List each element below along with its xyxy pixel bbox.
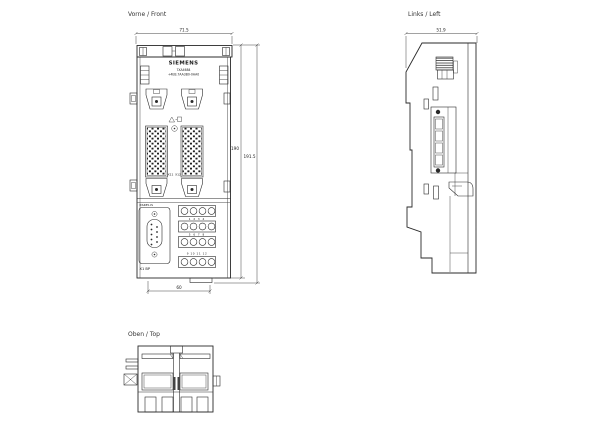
- side-connector-strip: [431, 107, 456, 173]
- connector-label-x12: X12: [175, 173, 181, 177]
- bus-adapter-connector: [436, 57, 458, 79]
- top-view: Oben / Top: [124, 331, 220, 412]
- vent-slots-left: [141, 66, 150, 84]
- terminal-row-2: [179, 221, 216, 232]
- release-lever-bottom-right: [182, 179, 203, 197]
- terminal-block: 1 2 3 4 5 6 7 8 9 10 11 12: [179, 206, 216, 268]
- front-bottom-foot: [190, 278, 212, 283]
- front-rail-bar: [137, 46, 232, 58]
- top-bottom-feet: [138, 390, 213, 412]
- front-dim-width: 71.5: [135, 28, 234, 45]
- release-lever-top-left: [146, 89, 167, 109]
- part-number-line2: +4EB.7AA3B0-0AA0: [168, 73, 199, 77]
- top-module: [124, 346, 220, 412]
- release-lever-bottom-left: [146, 179, 167, 197]
- front-dim-width-bottom-value: 60: [176, 285, 182, 290]
- terminal-row-1: [179, 206, 216, 217]
- release-lever-top-right: [182, 89, 203, 109]
- top-connector-left: [142, 373, 173, 390]
- terminal-numbers-row3: 5 6 7 8: [189, 233, 205, 237]
- top-right-tab: [213, 376, 220, 386]
- left-view: Links / Left 51.9: [405, 11, 479, 273]
- top-connector-right: [180, 373, 208, 390]
- top-center-slot-right: [178, 377, 181, 390]
- side-clips-upper: [130, 93, 230, 104]
- top-left-tabs: [124, 359, 138, 385]
- vent-slots-right: [220, 66, 229, 84]
- terminal-row-3: [179, 237, 216, 248]
- top-center-channel: [171, 346, 183, 377]
- front-dim-width-bottom: 60: [147, 281, 212, 294]
- top-center-slot-left: [173, 377, 176, 390]
- front-dim-width-value: 71.5: [179, 28, 189, 33]
- front-dim-height-total-value: 191.5: [244, 154, 256, 159]
- warning-triangle-icon: [169, 117, 182, 122]
- terminal-numbers-row2: 1 2 3 4: [189, 217, 205, 221]
- connector-label-x11: X11: [168, 173, 174, 177]
- left-module: [406, 43, 476, 273]
- left-view-title: Links / Left: [408, 11, 441, 18]
- pin-grid-connector-right: [181, 126, 203, 177]
- front-view-title: Vorne / Front: [128, 11, 167, 18]
- left-dim-width-value: 51.9: [436, 28, 446, 33]
- pin-grid-connector-left: [146, 126, 168, 177]
- front-dim-height-value: 190: [231, 146, 239, 151]
- drawing-canvas: Vorne / Front 71.5 190 191.5: [0, 0, 600, 425]
- top-view-title: Oben / Top: [128, 331, 160, 338]
- interface-label: RS485-IS: [140, 203, 154, 207]
- front-module: SIEMENS 7XA4684 +4EB.7AA3B0-0AA0: [130, 46, 232, 283]
- part-number-line1: 7XA4684: [176, 68, 190, 72]
- front-view: Vorne / Front 71.5 190 191.5: [128, 11, 260, 294]
- terminal-row-4: [179, 257, 216, 268]
- left-profile-outline: [406, 43, 476, 273]
- dsub-9-connector: [139, 208, 170, 264]
- technical-drawing-page: Vorne / Front 71.5 190 191.5: [0, 0, 600, 425]
- siemens-logo-text: SIEMENS: [169, 61, 199, 67]
- side-clips-lower: [130, 180, 230, 192]
- dsub-label: X1 BP: [140, 267, 151, 271]
- certification-mark-icon: [172, 126, 178, 132]
- side-release-lever: [449, 182, 473, 196]
- terminal-numbers-row4: 9 10 11 12: [187, 252, 208, 256]
